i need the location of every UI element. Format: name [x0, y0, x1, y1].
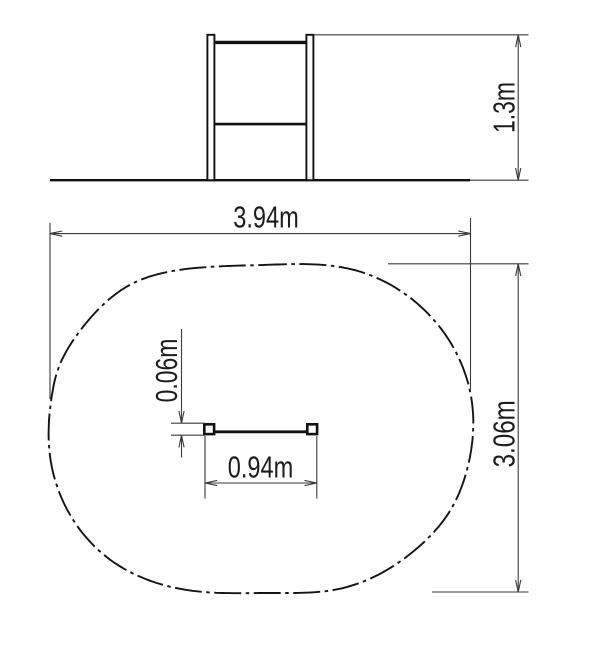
svg-text:0.06m: 0.06m: [149, 339, 184, 403]
svg-text:3.94m: 3.94m: [233, 199, 298, 234]
svg-text:0.94m: 0.94m: [228, 450, 293, 485]
svg-text:1.3m: 1.3m: [486, 82, 521, 133]
svg-text:3.06m: 3.06m: [487, 400, 522, 467]
